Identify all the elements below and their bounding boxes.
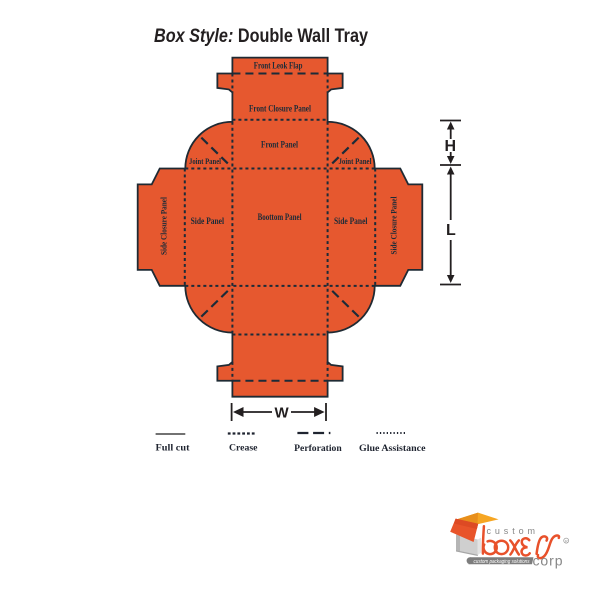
- svg-text:Front Leok Flap: Front Leok Flap: [254, 61, 303, 71]
- svg-text:Perforation: Perforation: [294, 444, 342, 454]
- svg-text:Side Panel: Side Panel: [191, 216, 225, 226]
- svg-text:L: L: [446, 222, 456, 239]
- svg-text:Full cut: Full cut: [156, 444, 191, 454]
- svg-text:Front Closure Panel: Front Closure Panel: [249, 103, 311, 113]
- svg-text:Front Panel: Front Panel: [261, 139, 298, 149]
- svg-text:Glue Assistance: Glue Assistance: [359, 444, 426, 454]
- svg-text:Joint Panel: Joint Panel: [339, 157, 373, 166]
- svg-text:custom packaging solutions: custom packaging solutions: [474, 559, 530, 565]
- svg-text:Box Style: Double Wall Tray: Box Style: Double Wall Tray: [154, 25, 368, 47]
- svg-text:Side Closure Panel: Side Closure Panel: [389, 196, 399, 255]
- svg-text:H: H: [445, 138, 457, 155]
- svg-text:Side Panel: Side Panel: [334, 216, 368, 226]
- svg-text:R: R: [565, 538, 568, 543]
- svg-text:custom: custom: [487, 526, 536, 536]
- svg-text:Crease: Crease: [229, 444, 258, 454]
- svg-text:W: W: [275, 405, 290, 422]
- svg-text:Side Closure Panel: Side Closure Panel: [159, 196, 169, 255]
- svg-text:Boottom Panel: Boottom Panel: [258, 212, 302, 222]
- svg-text:Joint Panel: Joint Panel: [189, 157, 222, 166]
- svg-text:corp: corp: [533, 553, 563, 569]
